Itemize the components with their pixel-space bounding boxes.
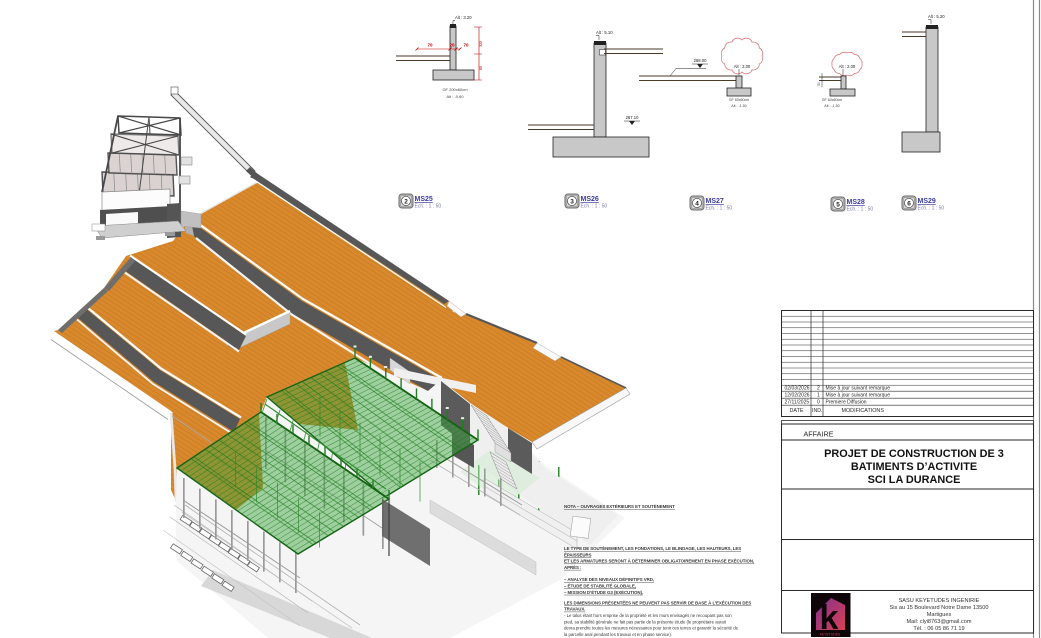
- svg-text:267.10: 267.10: [626, 115, 639, 120]
- svg-text:– MISSION D’ÉTUDE G3 (EXÉCUTIO: – MISSION D’ÉTUDE G3 (EXÉCUTION).: [564, 590, 643, 595]
- svg-text:Ech. : 1 : 50: Ech. : 1 : 50: [581, 204, 608, 210]
- svg-text:02/03/2026: 02/03/2026: [785, 386, 810, 392]
- svg-text:ÉPAISSEURS: ÉPAISSEURS: [564, 552, 592, 557]
- svg-text:Alt : 2.00: Alt : 2.00: [734, 64, 751, 69]
- svg-text:Tél. : 06 05 86 71 19: Tél. : 06 05 86 71 19: [913, 626, 964, 632]
- svg-text:Ech. : 1 : 50: Ech. : 1 : 50: [847, 207, 874, 213]
- svg-text:LE TYPE DE SOUTÈNEMENT, LES FO: LE TYPE DE SOUTÈNEMENT, LES FONDATIONS, …: [564, 546, 741, 551]
- svg-text:27/11/2025: 27/11/2025: [785, 400, 810, 406]
- svg-text:– ÉTUDE DE STABILITÉ GLOBALE,: – ÉTUDE DE STABILITÉ GLOBALE,: [564, 584, 636, 589]
- svg-text:Alt : 3.20: Alt : 3.20: [455, 15, 472, 20]
- svg-text:IND.: IND.: [812, 408, 822, 414]
- svg-text:- Le talus étant hors emprise: - Le talus étant hors emprise de la prop…: [564, 613, 732, 618]
- svg-text:20: 20: [449, 43, 455, 48]
- svg-text:GF 200x60cm: GF 200x60cm: [442, 87, 468, 92]
- svg-text:Alt : -1.50: Alt : -1.50: [824, 104, 839, 108]
- svg-text:AFFAIRE: AFFAIRE: [804, 430, 834, 439]
- svg-text:MODIFICATIONS: MODIFICATIONS: [842, 408, 885, 414]
- svg-text:Premiere Diffusion: Premiere Diffusion: [826, 400, 867, 406]
- svg-text:Martigues: Martigues: [927, 612, 952, 618]
- svg-text:k: k: [820, 599, 839, 637]
- svg-text:Alt : -0.60: Alt : -0.60: [446, 94, 464, 99]
- svg-text:GF 60x60cm: GF 60x60cm: [822, 98, 843, 102]
- svg-text:6: 6: [907, 200, 911, 207]
- svg-text:SASU KEYETUDES INGENIRIE: SASU KEYETUDES INGENIRIE: [899, 598, 980, 604]
- svg-text:Alt : 5.20: Alt : 5.20: [928, 14, 945, 19]
- svg-text:4: 4: [695, 200, 699, 207]
- svg-text:APRÈS :: APRÈS :: [564, 565, 582, 570]
- svg-text:320: 320: [479, 41, 483, 47]
- svg-text:DATE: DATE: [790, 408, 804, 414]
- svg-text:70: 70: [463, 43, 469, 48]
- svg-text:Ech. : 1 : 50: Ech. : 1 : 50: [415, 204, 442, 210]
- svg-text:50: 50: [817, 82, 821, 86]
- svg-text:Alt : -1.50: Alt : -1.50: [731, 104, 746, 108]
- svg-text:Mise à jour suivant remarque: Mise à jour suivant remarque: [826, 386, 891, 392]
- svg-text:MS26: MS26: [581, 196, 599, 203]
- svg-text:TRAVAUX.: TRAVAUX.: [564, 607, 585, 612]
- svg-text:MS25: MS25: [415, 196, 433, 203]
- svg-text:Alt : 2.00: Alt : 2.00: [839, 64, 856, 69]
- svg-text:0: 0: [817, 400, 820, 406]
- svg-text:MS28: MS28: [847, 199, 865, 206]
- svg-text:12/02/2026: 12/02/2026: [785, 393, 810, 399]
- svg-text:NOTA – OUVRAGES EXTÉRIEURS ET: NOTA – OUVRAGES EXTÉRIEURS ET SOUTÈNEMEN…: [564, 504, 675, 509]
- svg-text:Mise à jour suivant remarque: Mise à jour suivant remarque: [826, 393, 891, 399]
- svg-text:70: 70: [427, 43, 433, 48]
- svg-text:Mail: clyi8763@gmail.com: Mail: clyi8763@gmail.com: [906, 619, 971, 625]
- svg-text:ET LES ARMATURES SERONT À DÉTE: ET LES ARMATURES SERONT À DÉTERMINER OBL…: [564, 559, 754, 564]
- svg-text:Sis au 15 Boulevard Notre Dame: Sis au 15 Boulevard Notre Dame 13500: [890, 605, 989, 611]
- svg-text:268.00: 268.00: [694, 58, 707, 63]
- svg-text:PROJET DE CONSTRUCTION DE 3: PROJET DE CONSTRUCTION DE 3: [824, 448, 1004, 460]
- svg-text:GF 60x60cm: GF 60x60cm: [729, 98, 750, 102]
- svg-text:SCI LA DURANCE: SCI LA DURANCE: [868, 474, 961, 486]
- svg-text:Ech. : 1 : 50: Ech. : 1 : 50: [918, 206, 945, 212]
- svg-text:Ech. : 1 : 50: Ech. : 1 : 50: [706, 206, 733, 212]
- svg-text:2: 2: [404, 198, 408, 205]
- svg-text:la parcelle aval pendant les t: la parcelle aval pendant les travaux et …: [564, 632, 672, 637]
- svg-text:LES DIMENSIONS PRÉSENTÉES NE P: LES DIMENSIONS PRÉSENTÉES NE PEUVENT PAS…: [564, 600, 751, 605]
- svg-text:MS29: MS29: [918, 198, 936, 205]
- svg-text:5: 5: [836, 201, 840, 208]
- svg-text:MS27: MS27: [706, 198, 724, 205]
- svg-text:Alt : 5.10: Alt : 5.10: [596, 30, 613, 35]
- svg-text:– ANALYSE DES NIVEAUX DÉFINITI: – ANALYSE DES NIVEAUX DÉFINITIFS VRD,: [564, 577, 654, 582]
- svg-text:3: 3: [570, 198, 574, 205]
- svg-text:1: 1: [817, 393, 820, 399]
- svg-text:KEYETUDES: KEYETUDES: [820, 633, 841, 637]
- svg-text:BATIMENTS D’ACTIVITE: BATIMENTS D’ACTIVITE: [851, 461, 977, 473]
- svg-text:2: 2: [817, 386, 820, 392]
- svg-text:devra prendre toutes les mesur: devra prendre toutes les mesures nécessa…: [564, 626, 739, 631]
- svg-text:pied, sa stabilité générale ne: pied, sa stabilité générale ne fait pas …: [564, 619, 727, 624]
- svg-text:60: 60: [479, 66, 483, 70]
